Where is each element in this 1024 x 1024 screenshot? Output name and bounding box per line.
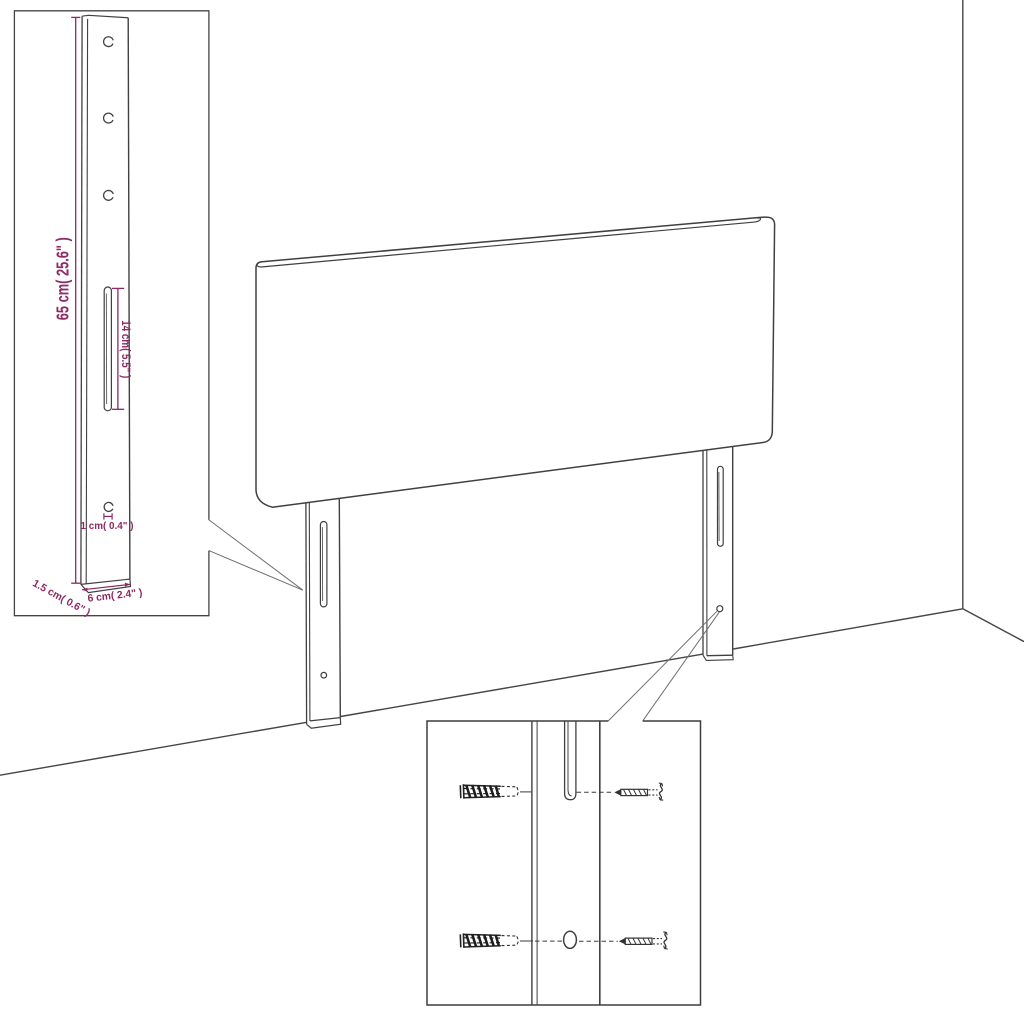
svg-text:14 cm( 5.5" ): 14 cm( 5.5" ) (119, 320, 133, 378)
svg-text:1 cm( 0.4" ): 1 cm( 0.4" ) (81, 521, 134, 532)
svg-text:65 cm( 25.6" ): 65 cm( 25.6" ) (52, 237, 72, 320)
